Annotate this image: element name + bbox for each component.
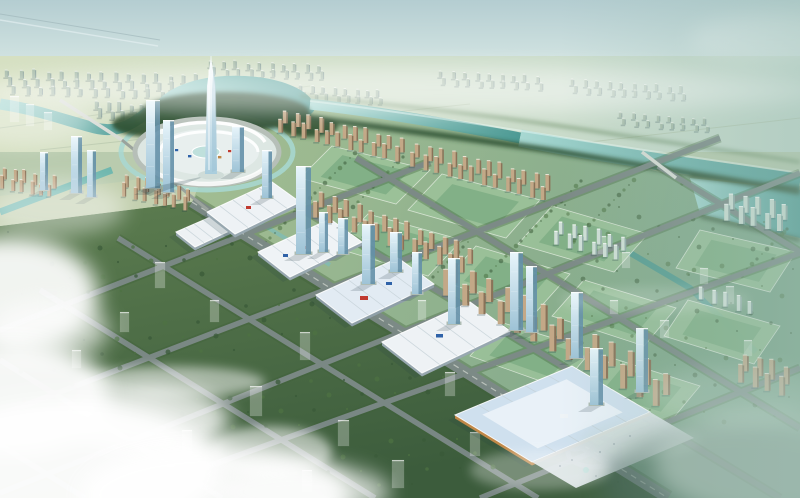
tower-block bbox=[443, 237, 447, 254]
tower-roof-edge bbox=[163, 120, 174, 121]
tower-block bbox=[506, 177, 510, 191]
tower-block bbox=[493, 175, 497, 188]
tower-block bbox=[291, 122, 295, 136]
tree-speckle bbox=[456, 438, 458, 440]
tree-speckle bbox=[196, 320, 200, 324]
tower-roof-edge bbox=[338, 218, 348, 219]
tower-block bbox=[469, 166, 473, 181]
tower-block bbox=[415, 144, 419, 157]
tower-roof-edge bbox=[412, 252, 422, 253]
tower-block bbox=[353, 127, 357, 141]
tower-block bbox=[368, 211, 372, 226]
tower-block bbox=[333, 197, 337, 213]
tree-speckle bbox=[394, 392, 396, 394]
tower-block bbox=[172, 194, 175, 207]
tree-speckle bbox=[327, 393, 332, 398]
right-atmosphere-vignette bbox=[560, 0, 800, 498]
tower-block bbox=[222, 62, 224, 69]
tower-shade-face bbox=[269, 152, 273, 199]
tree-speckle bbox=[544, 214, 549, 219]
tree-speckle bbox=[216, 258, 218, 260]
tower-block bbox=[363, 128, 367, 143]
hall-signage bbox=[246, 206, 251, 209]
tree-speckle bbox=[437, 271, 439, 273]
tree-speckle bbox=[134, 352, 136, 354]
tree-speckle bbox=[351, 205, 356, 210]
tower-block bbox=[545, 175, 549, 191]
tower-roof-edge bbox=[448, 258, 460, 259]
tree-speckle bbox=[98, 246, 103, 251]
tree-speckle bbox=[168, 274, 170, 276]
tower-block bbox=[233, 61, 235, 69]
tower-block bbox=[418, 230, 422, 245]
tower-roof-edge bbox=[526, 266, 537, 267]
ghost-tower bbox=[445, 372, 455, 396]
tree-speckle bbox=[117, 261, 119, 263]
tower-block bbox=[482, 169, 486, 185]
tower-block bbox=[122, 183, 125, 197]
tower-block bbox=[468, 249, 472, 264]
tower-roof-edge bbox=[510, 252, 523, 253]
tower-block bbox=[423, 242, 427, 259]
tree-speckle bbox=[391, 363, 393, 365]
tower-block bbox=[313, 202, 317, 218]
tower-block bbox=[470, 271, 475, 293]
tower-block bbox=[428, 147, 432, 161]
tree-speckle bbox=[362, 196, 364, 198]
tower-block bbox=[541, 187, 545, 200]
tower-shade-face bbox=[398, 234, 402, 273]
tower-block bbox=[434, 157, 438, 173]
tree-speckle bbox=[248, 256, 253, 261]
tree-speckle bbox=[166, 350, 171, 355]
tree-speckle bbox=[442, 376, 444, 378]
tree-speckle bbox=[244, 304, 248, 308]
tree-speckle bbox=[467, 241, 469, 243]
tree-speckle bbox=[247, 411, 249, 413]
tree-speckle bbox=[295, 395, 297, 397]
tower-shade-face bbox=[533, 268, 537, 333]
tree-speckle bbox=[549, 209, 552, 212]
tree-speckle bbox=[281, 333, 283, 335]
tree-speckle bbox=[401, 155, 404, 158]
tower-block bbox=[348, 135, 352, 150]
tree-speckle bbox=[319, 187, 321, 189]
tree-speckle bbox=[262, 318, 267, 323]
tower-block bbox=[306, 115, 310, 129]
tree-speckle bbox=[425, 467, 429, 471]
tower-block bbox=[111, 111, 114, 119]
tower-shade-face bbox=[419, 254, 423, 295]
tower-block bbox=[177, 186, 180, 200]
tree-speckle bbox=[489, 269, 492, 272]
tree-speckle bbox=[461, 245, 464, 248]
tower-block bbox=[319, 192, 323, 207]
tree-speckle bbox=[100, 352, 104, 356]
tower-block bbox=[335, 132, 339, 146]
tower-block bbox=[530, 182, 534, 198]
tower-block bbox=[463, 157, 467, 170]
tree-speckle bbox=[295, 317, 299, 321]
tree-speckle bbox=[495, 265, 497, 267]
tower-block bbox=[554, 232, 558, 245]
tree-speckle bbox=[233, 349, 235, 351]
tower-block bbox=[134, 188, 137, 200]
tower-block bbox=[283, 111, 287, 123]
tower-shade-face bbox=[345, 220, 349, 255]
tower-block bbox=[400, 138, 404, 152]
tree-speckle bbox=[230, 320, 232, 322]
tower-block bbox=[479, 292, 484, 314]
aerial-city-rendering bbox=[0, 0, 800, 498]
tree-speckle bbox=[422, 438, 426, 442]
tower-roof-edge bbox=[232, 126, 244, 127]
tower-roof-edge bbox=[40, 152, 48, 153]
tree-speckle bbox=[346, 408, 348, 410]
tower-block bbox=[5, 70, 8, 77]
tower-block bbox=[454, 240, 458, 258]
tower-block bbox=[330, 123, 334, 135]
tower-block bbox=[20, 71, 23, 79]
tower-block bbox=[382, 216, 386, 232]
hall-signage bbox=[386, 282, 392, 285]
tower-block bbox=[521, 171, 525, 185]
tower-block bbox=[486, 279, 491, 302]
tower-block bbox=[448, 164, 452, 177]
tower-roof-edge bbox=[262, 150, 272, 151]
tower-block bbox=[14, 170, 17, 182]
tree-speckle bbox=[411, 483, 413, 485]
tower-block bbox=[535, 173, 539, 188]
tree-speckle bbox=[199, 349, 203, 353]
tower-block bbox=[372, 143, 376, 156]
tower-block bbox=[404, 222, 408, 240]
tree-speckle bbox=[182, 258, 186, 262]
ghost-tower bbox=[338, 420, 349, 446]
tree-speckle bbox=[230, 242, 234, 246]
tower-block bbox=[395, 147, 399, 162]
tower-shade-face bbox=[155, 102, 160, 189]
tower-shade-face bbox=[306, 168, 311, 255]
tree-speckle bbox=[353, 151, 358, 156]
rendering-canvas bbox=[0, 0, 800, 498]
tree-speckle bbox=[343, 379, 345, 381]
tree-speckle bbox=[408, 376, 412, 380]
tree-speckle bbox=[499, 259, 504, 264]
tree-speckle bbox=[540, 220, 542, 222]
tower-shade-face bbox=[325, 214, 328, 253]
tree-speckle bbox=[278, 304, 280, 306]
tower-block bbox=[505, 288, 510, 312]
tree-speckle bbox=[231, 425, 236, 430]
tree-speckle bbox=[323, 181, 328, 186]
tree-speckle bbox=[334, 172, 336, 174]
tower-block bbox=[511, 169, 515, 182]
tree-speckle bbox=[338, 166, 343, 171]
tree-speckle bbox=[484, 274, 489, 279]
tower-block bbox=[0, 176, 3, 189]
tower-block bbox=[443, 270, 448, 296]
tree-speckle bbox=[165, 245, 167, 247]
ghost-tower bbox=[155, 262, 165, 288]
tree-speckle bbox=[392, 166, 394, 168]
tree-speckle bbox=[268, 236, 271, 239]
tree-speckle bbox=[148, 336, 152, 340]
ghost-tower bbox=[120, 312, 129, 332]
tower-block bbox=[376, 135, 380, 147]
tower-block bbox=[387, 136, 391, 149]
tree-speckle bbox=[120, 290, 122, 292]
tower-shade-face bbox=[370, 226, 375, 285]
tree-speckle bbox=[101, 275, 106, 280]
tower-shade-face bbox=[456, 260, 460, 325]
tower-block bbox=[357, 204, 361, 222]
tree-speckle bbox=[519, 239, 522, 242]
tree-speckle bbox=[309, 379, 313, 383]
tree-speckle bbox=[298, 424, 300, 426]
tower-block bbox=[476, 160, 480, 174]
tree-speckle bbox=[115, 337, 120, 342]
tower-block bbox=[458, 165, 462, 179]
tower-block bbox=[359, 140, 363, 152]
tree-speckle bbox=[426, 390, 431, 395]
tower-block bbox=[452, 151, 456, 167]
tower-block bbox=[497, 162, 501, 178]
tower-block bbox=[410, 153, 414, 167]
tree-speckle bbox=[149, 259, 154, 264]
tree-speckle bbox=[7, 231, 9, 233]
tower-block bbox=[541, 305, 546, 331]
tree-speckle bbox=[514, 244, 519, 249]
tower-block bbox=[462, 285, 467, 306]
tower-shade-face bbox=[170, 122, 174, 193]
hall-signage bbox=[360, 296, 368, 300]
tree-speckle bbox=[389, 439, 394, 444]
tower-block bbox=[319, 118, 323, 133]
tree-speckle bbox=[313, 191, 316, 194]
tower-block bbox=[517, 179, 521, 194]
tree-speckle bbox=[182, 336, 184, 338]
ghost-tower bbox=[210, 300, 219, 322]
tree-speckle bbox=[360, 392, 364, 396]
tower-block bbox=[498, 301, 503, 324]
tower-block bbox=[439, 149, 443, 164]
tower-roof-edge bbox=[390, 232, 402, 233]
ghost-tower bbox=[300, 332, 310, 360]
tree-speckle bbox=[247, 333, 251, 337]
tree-speckle bbox=[357, 363, 361, 367]
tower-roof-edge bbox=[296, 166, 311, 167]
ghost-tower bbox=[392, 460, 404, 488]
tree-speckle bbox=[279, 409, 284, 414]
tree-speckle bbox=[341, 455, 346, 460]
tree-speckle bbox=[163, 321, 168, 326]
tower-block bbox=[315, 130, 319, 142]
tower-block bbox=[382, 144, 386, 158]
tree-speckle bbox=[276, 380, 281, 385]
tower-roof-edge bbox=[87, 150, 96, 151]
tower-block bbox=[344, 200, 348, 217]
tree-speckle bbox=[214, 334, 219, 339]
tower-block bbox=[302, 123, 306, 138]
tower-block bbox=[296, 114, 300, 127]
tower-block bbox=[98, 108, 101, 118]
ghost-tower bbox=[250, 386, 262, 416]
tree-speckle bbox=[356, 200, 359, 203]
tree-speckle bbox=[134, 274, 138, 278]
tree-speckle bbox=[328, 176, 331, 179]
tower-block bbox=[278, 120, 282, 133]
tower-block bbox=[183, 196, 186, 210]
tree-speckle bbox=[431, 275, 434, 278]
tree-speckle bbox=[459, 467, 461, 469]
hall-signage bbox=[283, 254, 288, 257]
tower-block bbox=[437, 247, 441, 265]
tree-speckle bbox=[525, 235, 527, 237]
tree-speckle bbox=[200, 272, 205, 277]
tower-block bbox=[343, 126, 347, 139]
tree-speckle bbox=[274, 232, 276, 234]
tree-speckle bbox=[534, 224, 537, 227]
tower-shade-face bbox=[518, 254, 523, 331]
tree-speckle bbox=[440, 452, 445, 457]
tree-speckle bbox=[228, 396, 233, 401]
tree-speckle bbox=[313, 331, 318, 336]
tree-speckle bbox=[329, 317, 331, 319]
tower-block bbox=[549, 325, 554, 351]
ghost-tower bbox=[418, 300, 426, 320]
tree-speckle bbox=[278, 226, 283, 231]
tree-speckle bbox=[312, 408, 316, 412]
tree-speckle bbox=[408, 454, 410, 456]
tree-speckle bbox=[349, 157, 351, 159]
tower-block bbox=[487, 161, 491, 176]
tree-speckle bbox=[374, 454, 378, 458]
hall-signage bbox=[436, 334, 443, 338]
tree-speckle bbox=[292, 288, 296, 292]
tower-block bbox=[32, 69, 35, 78]
tower-roof-edge bbox=[319, 212, 328, 213]
tree-speckle bbox=[375, 377, 380, 382]
tower-roof-edge bbox=[362, 224, 375, 225]
tower-block bbox=[424, 155, 428, 170]
tree-speckle bbox=[131, 245, 135, 249]
tower-block bbox=[429, 233, 433, 249]
tree-speckle bbox=[529, 229, 534, 234]
tree-speckle bbox=[343, 161, 346, 164]
tower-block bbox=[325, 131, 329, 144]
tower-block bbox=[352, 217, 356, 232]
tower-shade-face bbox=[240, 128, 244, 173]
